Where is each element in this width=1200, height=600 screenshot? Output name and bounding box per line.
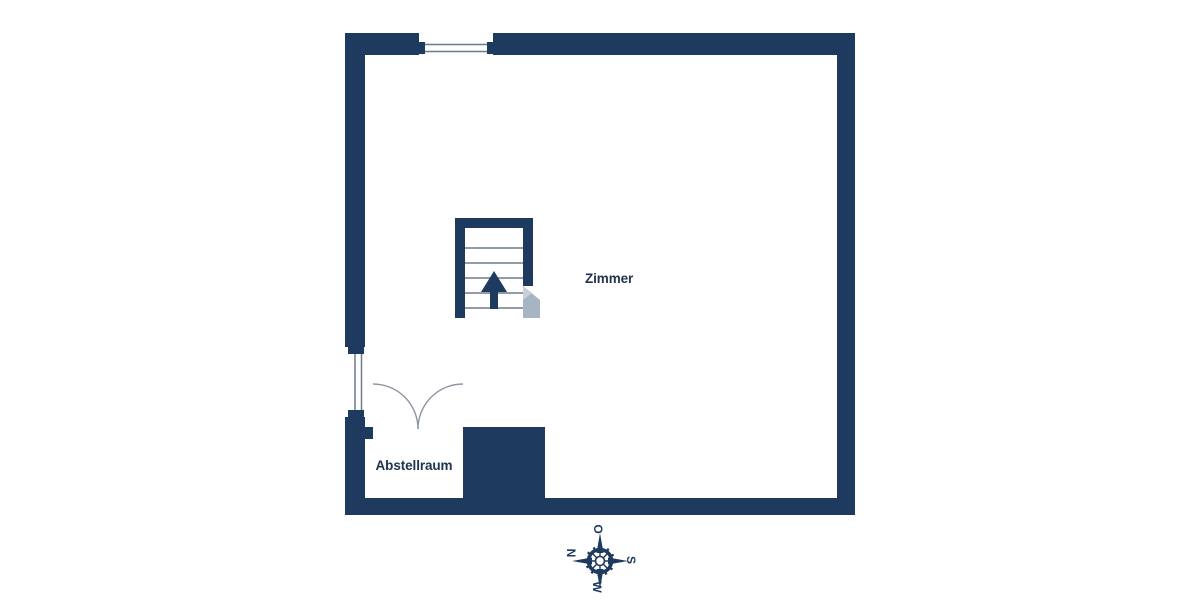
arrow-shaft [490,291,498,309]
window-jamb [348,410,364,417]
stair-wall-left [455,218,465,318]
compass-letter-east: O [591,524,605,533]
room-label-abstellraum: Abstellraum [376,458,453,473]
door-leaf-arc-right [418,384,463,429]
arrow-head [481,271,507,292]
room-label-zimmer: Zimmer [585,271,634,286]
window-jamb [419,42,425,54]
compass-spokes [589,550,611,572]
top-wall-right-segment [493,33,855,55]
left-wall-upper-segment [345,33,365,347]
door-jamb-nib [363,427,373,439]
compass-letter-west: W [590,581,604,593]
left-wall-lower-segment [345,417,365,515]
staircase [455,218,540,318]
top-wall-window [419,42,493,54]
right-wall [837,33,855,515]
up-arrow-icon [481,271,507,309]
floor-plan: Zimmer Abstellraum O N S W [0,0,1200,600]
door-leaf-arc-left [373,384,418,429]
storage-wall-block [463,427,545,498]
floor-plan-drawing: Zimmer Abstellraum O N S W [0,0,1200,600]
bottom-wall [345,498,855,515]
compass-rose-icon: O N S W [564,524,638,593]
compass-letter-south: S [624,556,638,564]
stair-wall-top [455,218,533,228]
stair-wall-right [523,218,533,286]
double-swing-door [373,384,463,429]
compass-letter-north: N [564,549,578,558]
left-wall-window [348,347,364,417]
window-jamb [487,42,493,54]
window-jamb [348,347,364,354]
